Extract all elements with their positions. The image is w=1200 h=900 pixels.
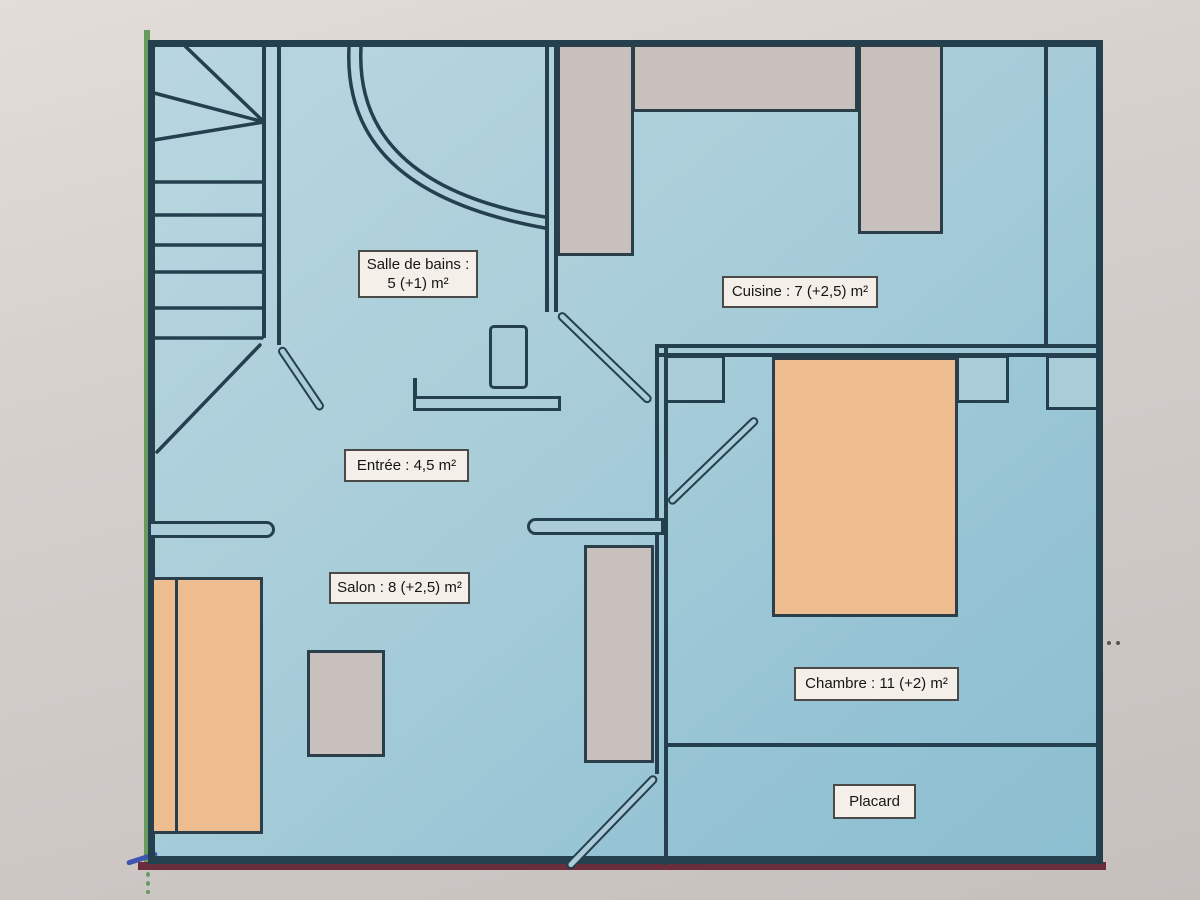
wall-stub-far-right bbox=[1046, 355, 1099, 410]
label-chambre-text: Chambre : 11 (+2) m² bbox=[805, 674, 948, 694]
label-cuisine-text: Cuisine : 7 (+2,5) m² bbox=[732, 282, 868, 302]
wall-bathroom-east-outer bbox=[545, 40, 549, 312]
floor-plan-photo: Salle de bains : 5 (+1) m² Cuisine : 7 (… bbox=[0, 0, 1200, 900]
wall-staircase-inner bbox=[262, 40, 266, 338]
wall-exterior-bottom bbox=[148, 856, 1103, 864]
label-placard: Placard bbox=[833, 784, 916, 819]
wall-bathroom-south bbox=[413, 396, 561, 411]
label-salle-de-bains-line2: 5 (+1) m² bbox=[387, 274, 448, 294]
toilet bbox=[489, 325, 528, 389]
sideboard bbox=[584, 545, 654, 763]
wall-kitchen-divider bbox=[1044, 40, 1048, 348]
label-salle-de-bains-line1: Salle de bains : bbox=[367, 255, 470, 275]
label-chambre: Chambre : 11 (+2) m² bbox=[794, 667, 959, 701]
bed bbox=[772, 357, 958, 617]
label-salon-text: Salon : 8 (+2,5) m² bbox=[337, 578, 462, 598]
label-cuisine: Cuisine : 7 (+2,5) m² bbox=[722, 276, 878, 308]
green-dash-1 bbox=[146, 872, 150, 877]
sofa-backrest-line bbox=[175, 578, 178, 833]
label-entree-text: Entrée : 4,5 m² bbox=[357, 456, 456, 476]
green-dash-3 bbox=[146, 890, 150, 894]
label-entree: Entrée : 4,5 m² bbox=[344, 449, 469, 482]
right-margin-dot-2 bbox=[1116, 641, 1120, 645]
coffee-table bbox=[307, 650, 385, 757]
wall-staircase-outer bbox=[277, 40, 281, 345]
wall-stub-bedroom-left bbox=[665, 355, 725, 403]
right-margin-dot-1 bbox=[1107, 641, 1111, 645]
kitchen-counter-left bbox=[557, 44, 634, 256]
green-dash-2 bbox=[146, 881, 150, 886]
label-placard-text: Placard bbox=[849, 792, 900, 812]
wall-hall-east bbox=[664, 344, 668, 865]
wall-kitchen-bedroom-top bbox=[655, 344, 1097, 348]
sofa bbox=[151, 577, 263, 834]
half-wall-salon-left bbox=[148, 521, 275, 538]
kitchen-fridge-column bbox=[858, 44, 943, 234]
wall-hall-west bbox=[655, 344, 659, 774]
kitchen-counter-top bbox=[632, 44, 858, 112]
label-salle-de-bains: Salle de bains : 5 (+1) m² bbox=[358, 250, 478, 298]
wall-stub-bedroom-right bbox=[956, 355, 1009, 403]
wall-bathroom-south-jamb bbox=[413, 378, 417, 398]
half-wall-salon-right bbox=[527, 518, 664, 535]
wall-bedroom-closet-divider bbox=[668, 743, 1097, 747]
label-salon: Salon : 8 (+2,5) m² bbox=[329, 572, 470, 604]
wall-exterior-right bbox=[1096, 40, 1103, 864]
